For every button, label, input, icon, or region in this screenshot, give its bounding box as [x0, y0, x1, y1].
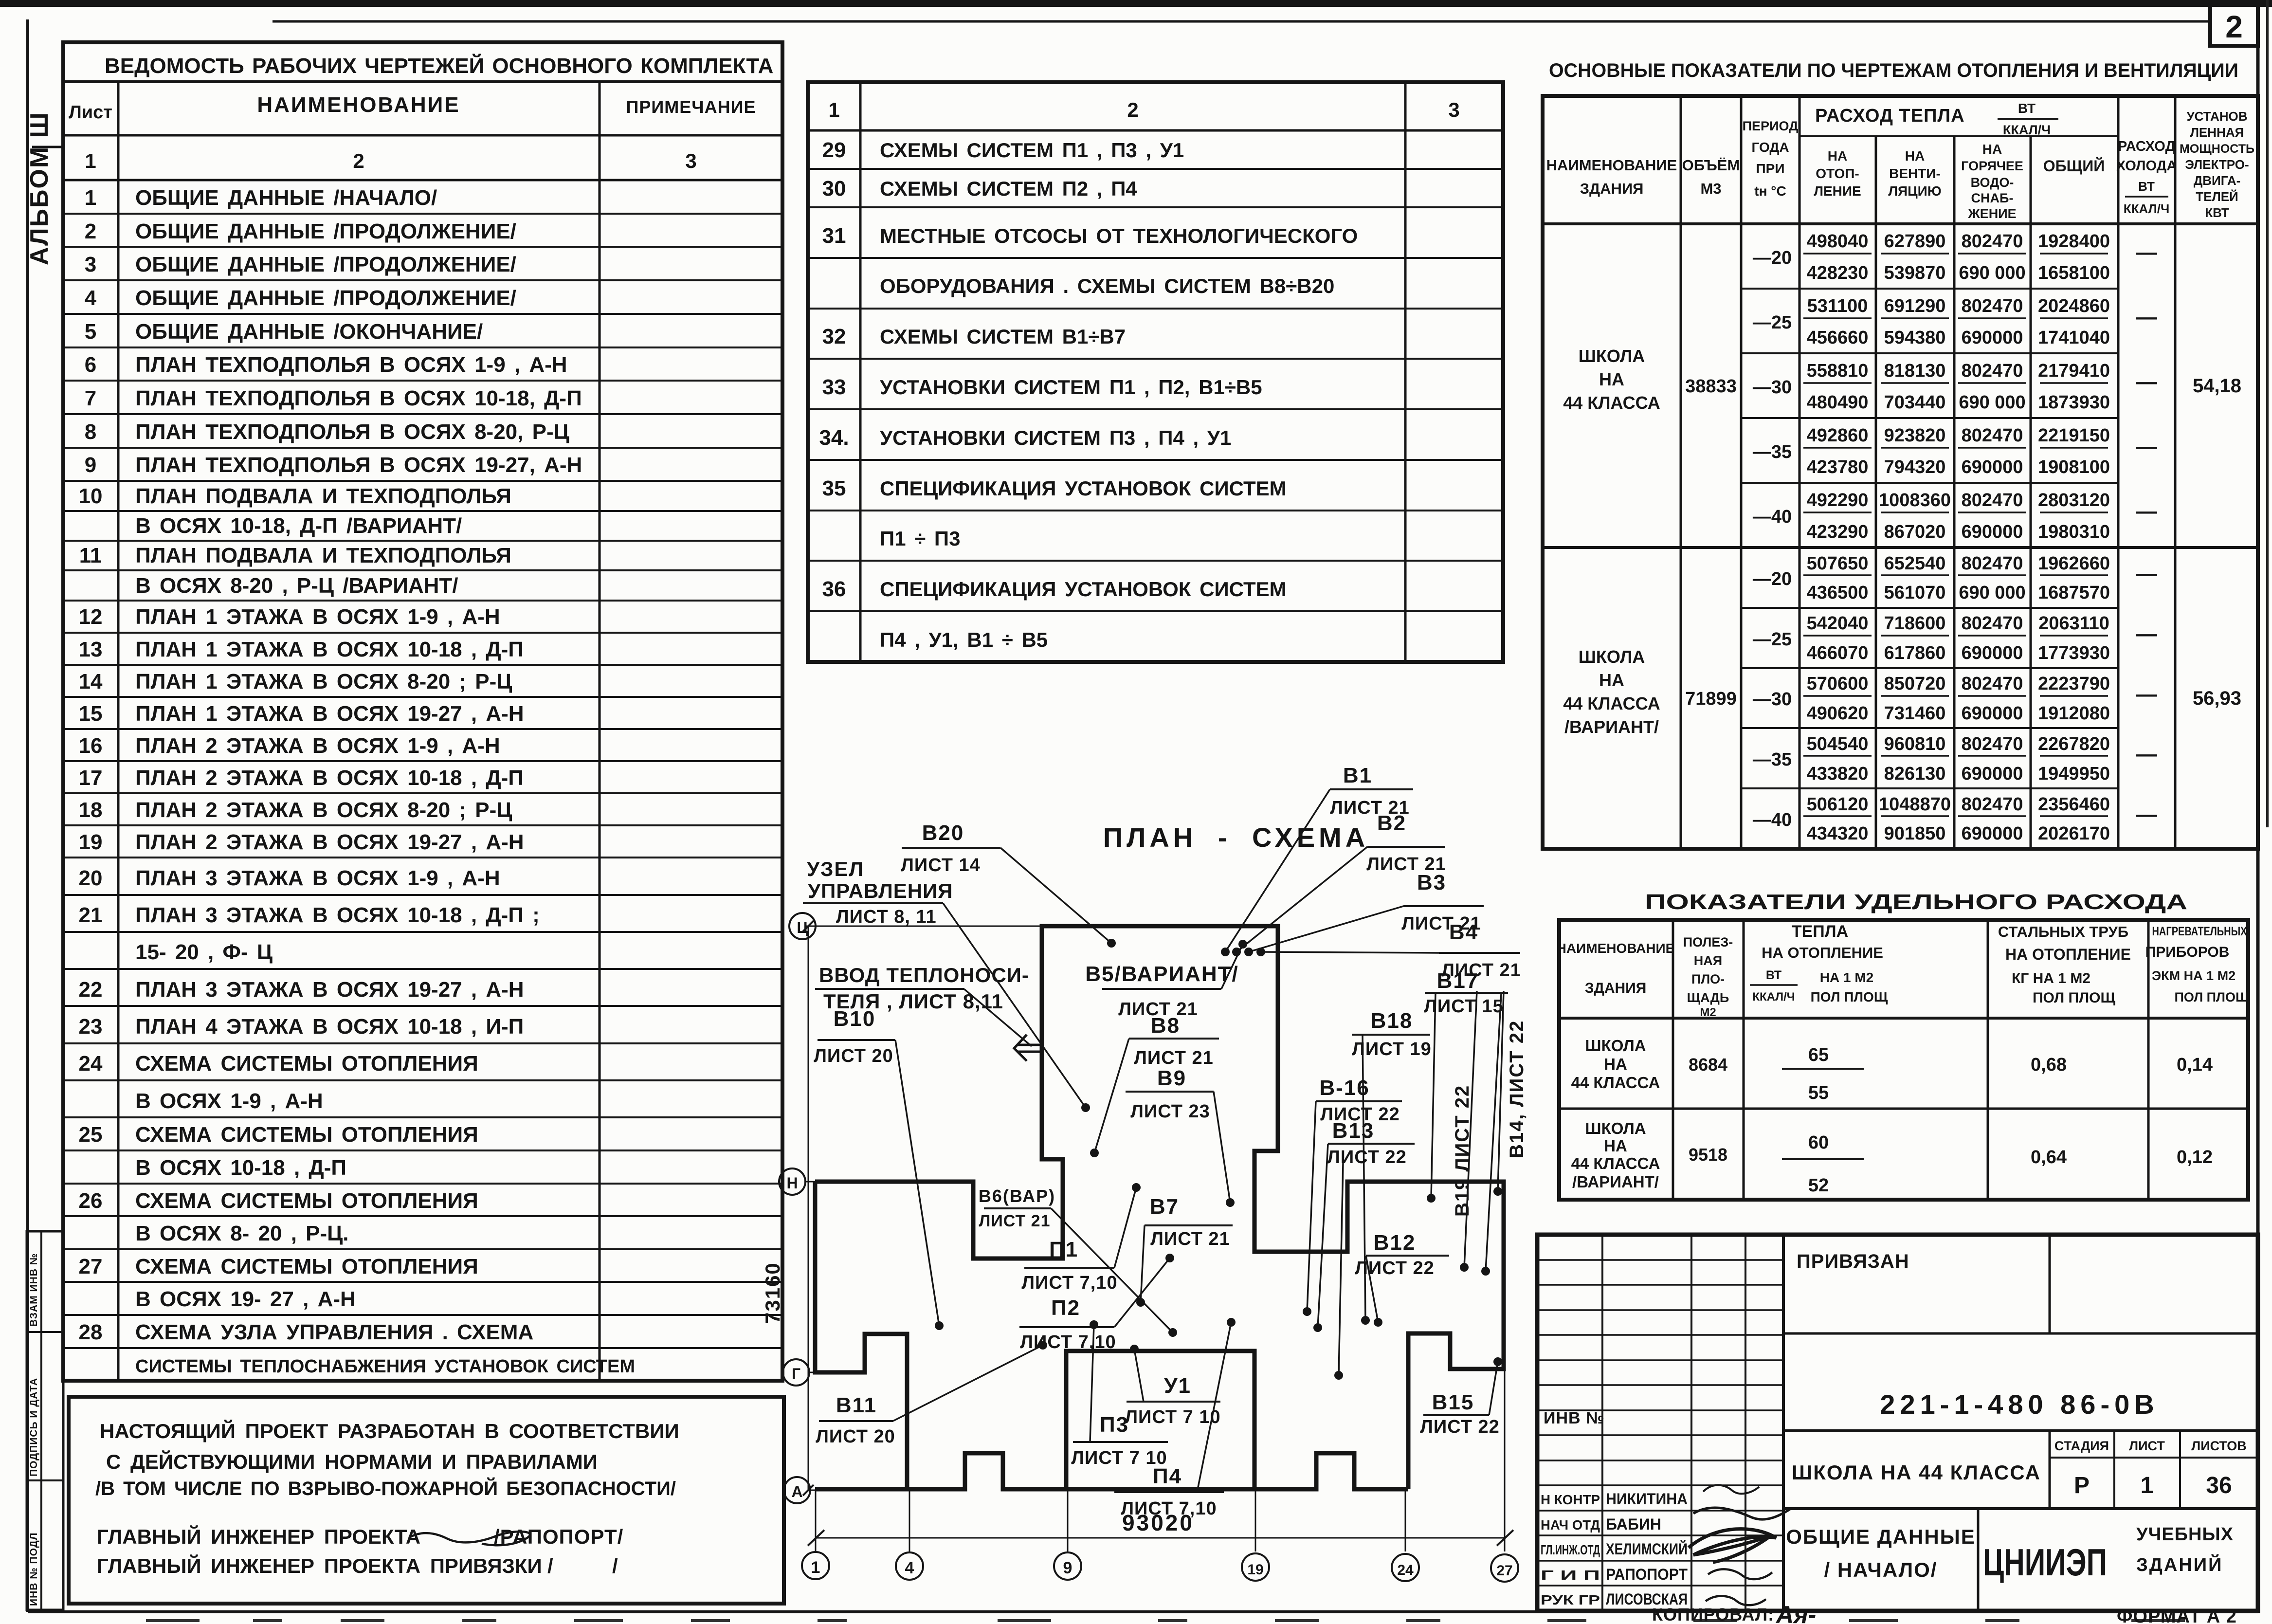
svg-text:СХЕМА СИСТЕМЫ ОТОПЛЕНИЯ: СХЕМА СИСТЕМЫ ОТОПЛЕНИЯ	[135, 1052, 478, 1076]
svg-text:490620: 490620	[1807, 703, 1869, 724]
svg-text:НАСТОЯЩИЙ ПРОЕКТ РАЗРАБОТАН: НАСТОЯЩИЙ ПРОЕКТ РАЗРАБОТАН В СООТВЕТСТВ…	[100, 1419, 679, 1442]
svg-text:ГЛ.ИНЖ.ОТД: ГЛ.ИНЖ.ОТД	[1541, 1542, 1600, 1557]
svg-text:Н КОНТР: Н КОНТР	[1541, 1492, 1600, 1507]
svg-text:24: 24	[1397, 1562, 1414, 1578]
svg-text:6: 6	[85, 353, 96, 377]
svg-text:ЛИСТ 19: ЛИСТ 19	[1352, 1039, 1432, 1059]
svg-text:15- 20 , Ф- Ц: 15- 20 , Ф- Ц	[135, 940, 273, 964]
svg-text:В17: В17	[1437, 969, 1479, 993]
svg-text:—40: —40	[1753, 810, 1792, 830]
svg-text:С ДЕЙСТВУЮЩИМИ НОРМАМИ И: С ДЕЙСТВУЮЩИМИ НОРМАМИ И ПРАВИЛАМИ	[106, 1450, 598, 1473]
svg-text:26: 26	[79, 1189, 103, 1213]
svg-text:ЛИСТ 22: ЛИСТ 22	[1420, 1417, 1500, 1437]
svg-text:802470: 802470	[1962, 490, 2023, 511]
svg-text:690000: 690000	[1962, 764, 2023, 784]
svg-text:5: 5	[85, 320, 96, 344]
svg-text:ФОРМАТ А 2: ФОРМАТ А 2	[2117, 1606, 2237, 1624]
svg-text:ПЛАН ПОДВАЛА И ТЕХПОДПОЛЬЯ: ПЛАН ПОДВАЛА И ТЕХПОДПОЛЬЯ	[135, 484, 511, 508]
svg-text:РАСХОД: РАСХОД	[2118, 139, 2176, 154]
svg-text:ОБЩИЕ ДАННЫЕ /ПРОДОЛЖЕНИЕ/: ОБЩИЕ ДАННЫЕ /ПРОДОЛЖЕНИЕ/	[135, 219, 516, 243]
svg-text:НАГРЕВАТЕЛЬНЫХ: НАГРЕВАТЕЛЬНЫХ	[2152, 925, 2247, 938]
svg-text:4: 4	[905, 1559, 914, 1577]
svg-text:35: 35	[822, 476, 846, 500]
svg-text:30: 30	[822, 177, 846, 201]
svg-text:—20: —20	[1753, 248, 1792, 268]
svg-text:ЛИСТ: ЛИСТ	[2129, 1439, 2165, 1453]
svg-text:25: 25	[79, 1123, 103, 1147]
svg-text:ОБЪЁМ: ОБЪЁМ	[1682, 157, 1740, 174]
svg-text:—: —	[2136, 622, 2157, 646]
svg-text:ПЛАН ПОДВАЛА И ТЕХПОДПОЛЬЯ: ПЛАН ПОДВАЛА И ТЕХПОДПОЛЬЯ	[135, 544, 511, 567]
svg-text:—35: —35	[1753, 442, 1792, 462]
svg-text:В5/ВАРИАНТ/: В5/ВАРИАНТ/	[1085, 962, 1238, 986]
svg-text:ПЛАН ТЕХПОДПОЛЬЯ В ОСЯХ 10-: ПЛАН ТЕХПОДПОЛЬЯ В ОСЯХ 10-18, Д-П	[135, 386, 582, 410]
svg-text:558810: 558810	[1807, 361, 1869, 381]
svg-text:ЛИСТ 20: ЛИСТ 20	[814, 1046, 893, 1066]
svg-text:ПОДПИСЬ И ДАТА: ПОДПИСЬ И ДАТА	[28, 1378, 39, 1477]
svg-text:617860: 617860	[1884, 643, 1946, 663]
svg-text:65: 65	[1808, 1045, 1829, 1065]
svg-text:433820: 433820	[1807, 764, 1869, 784]
svg-text:—25: —25	[1753, 312, 1792, 333]
svg-text:498040: 498040	[1807, 231, 1869, 252]
svg-text:703440: 703440	[1884, 392, 1946, 413]
svg-text:24: 24	[79, 1052, 103, 1076]
svg-text:2356460: 2356460	[2038, 794, 2110, 815]
svg-text:691290: 691290	[1884, 296, 1946, 316]
svg-text:НАИМЕНОВАНИЕ: НАИМЕНОВАНИЕ	[1557, 941, 1675, 956]
svg-text:НА ОТОПЛЕНИЕ: НА ОТОПЛЕНИЕ	[2005, 946, 2131, 963]
svg-text:492290: 492290	[1807, 490, 1869, 511]
svg-text:НАИМЕНОВАНИЕ: НАИМЕНОВАНИЕ	[257, 93, 460, 117]
svg-text:/: /	[612, 1554, 618, 1577]
svg-text:55: 55	[1808, 1083, 1829, 1103]
svg-text:—: —	[2136, 742, 2157, 766]
svg-text:ЛИСТ 21: ЛИСТ 21	[979, 1212, 1050, 1230]
svg-text:ПЛАН 1 ЭТАЖА В ОСЯХ 10-18 ,: ПЛАН 1 ЭТАЖА В ОСЯХ 10-18 , Д-П	[135, 638, 524, 661]
svg-text:ЗДАНИЯ: ЗДАНИЯ	[1580, 180, 1644, 197]
svg-text:466070: 466070	[1807, 643, 1869, 663]
svg-text:802470: 802470	[1962, 296, 2023, 316]
svg-text:2223790: 2223790	[2038, 674, 2110, 694]
svg-text:В4: В4	[1449, 920, 1478, 944]
svg-text:1873930: 1873930	[2038, 392, 2110, 413]
svg-text:456660: 456660	[1807, 328, 1869, 348]
svg-text:18: 18	[79, 798, 103, 822]
svg-text:СХЕМЫ СИСТЕМ П2 , П4: СХЕМЫ СИСТЕМ П2 , П4	[880, 177, 1137, 200]
svg-text:В-16: В-16	[1319, 1076, 1369, 1100]
svg-text:15: 15	[79, 702, 103, 726]
svg-text:ШКОЛА НА 44 КЛАССА: ШКОЛА НА 44 КЛАССА	[1792, 1461, 2041, 1484]
svg-text:ВОДО-: ВОДО-	[1971, 175, 2014, 190]
svg-text:НА: НА	[1604, 1055, 1627, 1073]
svg-text:594380: 594380	[1884, 328, 1946, 348]
svg-text:ОТОП-: ОТОП-	[1816, 166, 1859, 181]
svg-text:ЗДАНИЙ: ЗДАНИЙ	[2136, 1553, 2223, 1575]
svg-text:960810: 960810	[1884, 734, 1946, 754]
svg-text:802470: 802470	[1962, 734, 2023, 754]
svg-text:13: 13	[79, 638, 103, 661]
svg-text:802470: 802470	[1962, 794, 2023, 815]
svg-text:В ОСЯХ 8- 20 , Р-Ц.: В ОСЯХ 8- 20 , Р-Ц.	[135, 1222, 349, 1245]
svg-text:В1: В1	[1343, 764, 1372, 787]
svg-text:РАСХОД ТЕПЛА: РАСХОД ТЕПЛА	[1815, 106, 1965, 126]
svg-text:В18: В18	[1371, 1009, 1413, 1033]
svg-text:АЛЬБОМ Ш: АЛЬБОМ Ш	[25, 111, 54, 265]
svg-text:УСТАНОВ: УСТАНОВ	[2186, 109, 2247, 124]
svg-text:ОБЩИЕ ДАННЫЕ /ПРОДОЛЖЕНИЕ/: ОБЩИЕ ДАННЫЕ /ПРОДОЛЖЕНИЕ/	[135, 286, 516, 310]
svg-text:ЛИСТ 7 10: ЛИСТ 7 10	[1125, 1407, 1220, 1427]
svg-text:ОБЩИЕ ДАННЫЕ /ОКОНЧАНИЕ/: ОБЩИЕ ДАННЫЕ /ОКОНЧАНИЕ/	[135, 320, 483, 344]
svg-text:tн °C: tн °C	[1754, 183, 1786, 199]
svg-text:СХЕМА СИСТЕМЫ ОТОПЛЕНИЯ: СХЕМА СИСТЕМЫ ОТОПЛЕНИЯ	[135, 1255, 478, 1278]
svg-text:2: 2	[85, 219, 96, 243]
svg-text:В2: В2	[1377, 811, 1406, 835]
svg-text:НА: НА	[1604, 1137, 1627, 1155]
svg-text:690000: 690000	[1962, 643, 2023, 663]
svg-text:—30: —30	[1753, 689, 1792, 710]
svg-text:ИНВ №: ИНВ №	[1544, 1409, 1605, 1427]
svg-text:ЦНИИЭП: ЦНИИЭП	[1983, 1541, 2107, 1584]
svg-text:СХЕМА СИСТЕМЫ ОТОПЛЕНИЯ: СХЕМА СИСТЕМЫ ОТОПЛЕНИЯ	[135, 1189, 478, 1213]
svg-text:1949950: 1949950	[2038, 764, 2110, 784]
svg-text:/В ТОМ ЧИСЛЕ ПО ВЗРЫВО-ПОЖА: /В ТОМ ЧИСЛЕ ПО ВЗРЫВО-ПОЖАРНОЙ БЕЗОПАСН…	[95, 1477, 676, 1499]
svg-text:—25: —25	[1753, 629, 1792, 650]
svg-text:НА: НА	[1828, 148, 1847, 164]
svg-text:818130: 818130	[1884, 361, 1946, 381]
svg-text:561070: 561070	[1884, 583, 1946, 603]
svg-text:ЛИСТ 21: ЛИСТ 21	[1134, 1048, 1214, 1068]
svg-text:ОБЩИЙ: ОБЩИЙ	[2043, 157, 2105, 175]
svg-text:МЕСТНЫЕ ОТСОСЫ ОТ ТЕХНОЛОГИ: МЕСТНЫЕ ОТСОСЫ ОТ ТЕХНОЛОГИЧЕСКОГО	[880, 224, 1358, 247]
svg-text:19: 19	[79, 830, 103, 854]
svg-text:428230: 428230	[1807, 263, 1869, 283]
svg-text:В9: В9	[1157, 1066, 1186, 1090]
svg-text:ИНВ № ПОДЛ: ИНВ № ПОДЛ	[28, 1533, 39, 1606]
svg-text:ЛИСТ 8, 11: ЛИСТ 8, 11	[836, 907, 937, 927]
svg-text:506120: 506120	[1807, 794, 1869, 815]
svg-text:ТЕЛЕЙ: ТЕЛЕЙ	[2196, 189, 2238, 204]
svg-text:802470: 802470	[1962, 231, 2023, 252]
svg-text:ПОЛ ПЛОЩ: ПОЛ ПЛОЩ	[2033, 990, 2115, 1006]
svg-text:690000: 690000	[1962, 522, 2023, 542]
svg-text:Г И П: Г И П	[1541, 1568, 1600, 1583]
svg-text:423780: 423780	[1807, 457, 1869, 477]
svg-text:ТЕПЛА: ТЕПЛА	[1792, 922, 1848, 941]
svg-text:СТАЛЬНЫХ ТРУБ: СТАЛЬНЫХ ТРУБ	[1998, 923, 2128, 940]
svg-text:СНАБ-: СНАБ-	[1971, 191, 2014, 205]
svg-text:ПЛАН 1 ЭТАЖА В ОСЯХ 8-20 ;: ПЛАН 1 ЭТАЖА В ОСЯХ 8-20 ; Р-Ц	[135, 670, 512, 693]
svg-text:38833: 38833	[1685, 376, 1737, 397]
svg-text:0,12: 0,12	[2177, 1147, 2213, 1168]
svg-text:2: 2	[2225, 9, 2243, 44]
svg-text:826130: 826130	[1884, 764, 1946, 784]
svg-text:В10: В10	[834, 1007, 876, 1031]
svg-text:ОБОРУДОВАНИЯ . СХЕМЫ СИСТЕМ: ОБОРУДОВАНИЯ . СХЕМЫ СИСТЕМ В8÷В20	[880, 274, 1334, 297]
svg-text:1008360: 1008360	[1879, 490, 1951, 511]
svg-text:27: 27	[79, 1255, 103, 1278]
svg-text:П1: П1	[1049, 1238, 1078, 1261]
svg-text:480490: 480490	[1807, 392, 1869, 413]
svg-text:ПЛАН 4 ЭТАЖА В ОСЯХ 10-18 ,: ПЛАН 4 ЭТАЖА В ОСЯХ 10-18 , И-П	[135, 1015, 524, 1039]
svg-text:221-1-480 86-0В: 221-1-480 86-0В	[1880, 1389, 2159, 1420]
svg-text:У1: У1	[1164, 1374, 1191, 1398]
svg-text:690 000: 690 000	[1959, 263, 2025, 283]
svg-text:ХЕЛИМСКИЙ: ХЕЛИМСКИЙ	[1606, 1540, 1688, 1558]
svg-text:М2: М2	[1700, 1006, 1716, 1019]
svg-text:УПРАВЛЕНИЯ: УПРАВЛЕНИЯ	[808, 879, 953, 902]
svg-text:690 000: 690 000	[1959, 583, 2025, 603]
svg-text:3: 3	[85, 253, 96, 276]
svg-text:ПЛАН 2 ЭТАЖА В ОСЯХ 19-27 ,: ПЛАН 2 ЭТАЖА В ОСЯХ 19-27 , А-Н	[135, 830, 524, 854]
svg-text:44 КЛАССА: 44 КЛАССА	[1571, 1074, 1660, 1092]
svg-text:1928400: 1928400	[2038, 231, 2110, 252]
svg-text:УСТАНОВКИ СИСТЕМ П1 , П2,: УСТАНОВКИ СИСТЕМ П1 , П2, В1÷В5	[880, 376, 1262, 399]
svg-text:ВВОД ТЕПЛОНОСИ-: ВВОД ТЕПЛОНОСИ-	[819, 964, 1029, 986]
svg-text:44 КЛАССА: 44 КЛАССА	[1563, 693, 1660, 713]
svg-text:—20: —20	[1753, 569, 1792, 589]
svg-text:731460: 731460	[1884, 703, 1946, 724]
svg-text:ПОЛ ПЛОЩ: ПОЛ ПЛОЩ	[1811, 989, 1888, 1004]
svg-text:ГОРЯЧЕЕ: ГОРЯЧЕЕ	[1961, 159, 2023, 173]
svg-text:1: 1	[85, 186, 96, 210]
svg-text:3: 3	[685, 149, 696, 172]
svg-text:1: 1	[2141, 1473, 2154, 1498]
svg-text:690000: 690000	[1962, 703, 2023, 724]
svg-text:НАИМЕНОВАНИЕ: НАИМЕНОВАНИЕ	[1546, 157, 1677, 174]
svg-text:ВТ: ВТ	[2138, 179, 2155, 194]
svg-text:29: 29	[822, 138, 846, 162]
svg-text:531100: 531100	[1807, 296, 1868, 316]
svg-text:802470: 802470	[1962, 674, 2023, 694]
svg-text:—: —	[2136, 370, 2157, 394]
svg-text:ВЕДОМОСТЬ РАБОЧИХ ЧЕРТЕЖЕЙ: ВЕДОМОСТЬ РАБОЧИХ ЧЕРТЕЖЕЙ ОСНОВНОГО КОМ…	[105, 53, 773, 78]
svg-text:ЭКМ НА 1 М2: ЭКМ НА 1 М2	[2152, 968, 2236, 983]
svg-text:ЛИСТ 23: ЛИСТ 23	[1130, 1101, 1210, 1122]
svg-text:ПЛАН 1 ЭТАЖА В ОСЯХ 19-27 ,: ПЛАН 1 ЭТАЖА В ОСЯХ 19-27 , А-Н	[135, 702, 524, 726]
svg-text:НА 1 М2: НА 1 М2	[1820, 970, 1873, 985]
svg-text:ШКОЛА: ШКОЛА	[1579, 647, 1645, 667]
svg-text:ДВИГА-: ДВИГА-	[2194, 173, 2241, 188]
svg-text:690000: 690000	[1962, 328, 2023, 348]
svg-text:690000: 690000	[1962, 823, 2023, 844]
svg-text:ПЛАН ТЕХПОДПОЛЬЯ В ОСЯХ 1-9: ПЛАН ТЕХПОДПОЛЬЯ В ОСЯХ 1-9 , А-Н	[135, 353, 567, 377]
svg-text:33: 33	[822, 375, 846, 399]
svg-text:2267820: 2267820	[2038, 734, 2110, 754]
svg-text:ПРИВЯЗАН: ПРИВЯЗАН	[1797, 1251, 1909, 1272]
svg-text:В ОСЯХ 1-9 , А-Н: В ОСЯХ 1-9 , А-Н	[135, 1089, 323, 1113]
svg-text:КВТ: КВТ	[2205, 205, 2229, 220]
svg-text:1: 1	[811, 1558, 820, 1577]
svg-text:2026170: 2026170	[2038, 823, 2110, 844]
svg-text:ПЛАН ТЕХПОДПОЛЬЯ В ОСЯХ 8-2: ПЛАН ТЕХПОДПОЛЬЯ В ОСЯХ 8-20, Р-Ц	[135, 420, 569, 444]
svg-text:ККАЛ/Ч: ККАЛ/Ч	[1752, 990, 1795, 1004]
svg-text:44 КЛАССА: 44 КЛАССА	[1563, 393, 1660, 413]
svg-text:ЛИСТ 22: ЛИСТ 22	[1327, 1147, 1407, 1168]
svg-text:7: 7	[85, 386, 96, 410]
svg-text:В ОСЯХ 10-18, Д-П /ВАРИАНТ/: В ОСЯХ 10-18, Д-П /ВАРИАНТ/	[135, 514, 462, 538]
svg-text:ПЛАН 3 ЭТАЖА В ОСЯХ 10-18 ,: ПЛАН 3 ЭТАЖА В ОСЯХ 10-18 , Д-П ;	[135, 903, 540, 927]
svg-text:МОЩНОСТЬ: МОЩНОСТЬ	[2180, 142, 2254, 156]
svg-text:М3: М3	[1700, 180, 1721, 197]
svg-text:СХЕМЫ СИСТЕМ В1÷В7: СХЕМЫ СИСТЕМ В1÷В7	[880, 325, 1126, 348]
svg-text:17: 17	[79, 766, 103, 790]
svg-text:В6(ВАР): В6(ВАР)	[979, 1186, 1055, 1206]
svg-text:9: 9	[85, 453, 96, 477]
svg-text:ПОЛ ПЛОЩ: ПОЛ ПЛОЩ	[2174, 990, 2249, 1004]
svg-text:Р: Р	[2074, 1473, 2090, 1498]
svg-text:1912080: 1912080	[2038, 703, 2110, 724]
svg-text:20: 20	[79, 866, 103, 890]
svg-text:В ОСЯХ 10-18 , Д-П: В ОСЯХ 10-18 , Д-П	[135, 1156, 346, 1180]
svg-text:П3: П3	[1100, 1413, 1129, 1437]
svg-text:В15: В15	[1432, 1390, 1474, 1414]
svg-text:31: 31	[822, 224, 846, 248]
svg-text:2024860: 2024860	[2038, 296, 2110, 316]
svg-text:71899: 71899	[1685, 689, 1737, 709]
svg-text:ЛЯЦИЮ: ЛЯЦИЮ	[1888, 183, 1941, 199]
svg-text:ШКОЛА: ШКОЛА	[1585, 1037, 1646, 1055]
svg-text:КГ НА 1 М2: КГ НА 1 М2	[2012, 970, 2090, 986]
svg-text:ЛЕННАЯ: ЛЕННАЯ	[2190, 125, 2244, 140]
svg-text:652540: 652540	[1884, 553, 1946, 574]
svg-text:СХЕМЫ СИСТЕМ П1 , П3 , У1: СХЕМЫ СИСТЕМ П1 , П3 , У1	[880, 139, 1184, 162]
svg-text:ОБЩИЕ ДАННЫЕ /НАЧАЛО/: ОБЩИЕ ДАННЫЕ /НАЧАЛО/	[135, 186, 437, 210]
svg-text:ЛИСТ 20: ЛИСТ 20	[816, 1426, 895, 1447]
svg-text:60: 60	[1808, 1132, 1829, 1153]
svg-text:ГОДА: ГОДА	[1751, 140, 1789, 155]
svg-text:НА: НА	[1982, 142, 2002, 157]
svg-text:0,68: 0,68	[2031, 1055, 2067, 1075]
svg-text:СХЕМА СИСТЕМЫ ОТОПЛЕНИЯ: СХЕМА СИСТЕМЫ ОТОПЛЕНИЯ	[135, 1123, 478, 1147]
svg-text:504540: 504540	[1807, 734, 1869, 754]
svg-text:БАБИН: БАБИН	[1606, 1515, 1661, 1533]
svg-text:923820: 923820	[1884, 425, 1946, 446]
svg-text:СПЕЦИФИКАЦИЯ УСТАНОВОК СИС: СПЕЦИФИКАЦИЯ УСТАНОВОК СИСТЕМ	[880, 578, 1287, 601]
svg-text:НИКИТИНА: НИКИТИНА	[1606, 1490, 1688, 1508]
svg-text:423290: 423290	[1807, 522, 1869, 542]
svg-text:Н: Н	[786, 1174, 798, 1192]
svg-text:1741040: 1741040	[2038, 328, 2110, 348]
svg-text:ГЛАВНЫЙ ИНЖЕНЕР ПРОЕКТА: ГЛАВНЫЙ ИНЖЕНЕР ПРОЕКТА	[97, 1525, 420, 1548]
svg-text:ПЛАН 1 ЭТАЖА В ОСЯХ 1-9 , А: ПЛАН 1 ЭТАЖА В ОСЯХ 1-9 , А-Н	[135, 605, 500, 629]
svg-text:В14, ЛИСТ 22: В14, ЛИСТ 22	[1506, 1020, 1527, 1158]
svg-text:9518: 9518	[1689, 1145, 1727, 1165]
svg-text:ПРИ: ПРИ	[1756, 161, 1785, 176]
svg-text:ОБЩИЕ ДАННЫЕ: ОБЩИЕ ДАННЫЕ	[1786, 1525, 1976, 1548]
svg-text:570600: 570600	[1807, 674, 1869, 694]
svg-text:ПЛАН ТЕХПОДПОЛЬЯ В ОСЯХ 19-: ПЛАН ТЕХПОДПОЛЬЯ В ОСЯХ 19-27, А-Н	[135, 453, 582, 477]
svg-text:850720: 850720	[1884, 674, 1946, 694]
svg-text:—: —	[2136, 499, 2157, 523]
svg-text:2: 2	[353, 149, 364, 172]
svg-text:В12: В12	[1374, 1231, 1416, 1255]
svg-text:ПЕРИОД: ПЕРИОД	[1743, 119, 1799, 133]
svg-text:ЛИСТ 7,10: ЛИСТ 7,10	[1021, 1273, 1117, 1293]
svg-text:34.: 34.	[819, 426, 849, 450]
svg-text:2: 2	[1127, 98, 1138, 121]
svg-text:В ОСЯХ 8-20 , Р-Ц /ВАРИАНТ/: В ОСЯХ 8-20 , Р-Ц /ВАРИАНТ/	[135, 574, 458, 598]
svg-text:ПРИБОРОВ: ПРИБОРОВ	[2145, 944, 2230, 960]
svg-text:28: 28	[79, 1320, 103, 1344]
svg-text:П1 ÷ П3: П1 ÷ П3	[880, 527, 960, 550]
svg-text:802470: 802470	[1962, 613, 2023, 634]
svg-text:22: 22	[79, 978, 103, 1002]
svg-text:690000: 690000	[1962, 457, 2023, 477]
svg-text:ЖЕНИЕ: ЖЕНИЕ	[1967, 206, 2016, 221]
svg-text:14: 14	[79, 670, 103, 693]
svg-text:44 КЛАССА: 44 КЛАССА	[1571, 1154, 1660, 1172]
svg-text:1980310: 1980310	[2038, 522, 2110, 542]
svg-text:1048870: 1048870	[1879, 794, 1951, 815]
svg-text:27: 27	[1496, 1563, 1512, 1579]
svg-text:2803120: 2803120	[2038, 490, 2110, 511]
svg-text:НА: НА	[1599, 670, 1624, 690]
svg-text:ОСНОВНЫЕ ПОКАЗАТЕЛИ ПО ЧЕРТ: ОСНОВНЫЕ ПОКАЗАТЕЛИ ПО ЧЕРТЕЖАМ ОТОПЛЕНИ…	[1549, 60, 2238, 81]
svg-text:3: 3	[1448, 98, 1459, 121]
svg-text:—: —	[2136, 305, 2157, 329]
svg-text:ПЛАН 2 ЭТАЖА В ОСЯХ 1-9 , А: ПЛАН 2 ЭТАЖА В ОСЯХ 1-9 , А-Н	[135, 734, 500, 758]
svg-text:ЗДАНИЯ: ЗДАНИЯ	[1585, 980, 1647, 996]
svg-text:542040: 542040	[1807, 613, 1869, 634]
svg-text:УЧЕБНЫХ: УЧЕБНЫХ	[2136, 1524, 2234, 1545]
svg-text:В3: В3	[1417, 871, 1446, 894]
svg-text:ЛИСТ 21: ЛИСТ 21	[1150, 1229, 1230, 1249]
svg-text:539870: 539870	[1884, 263, 1946, 283]
svg-text:492860: 492860	[1807, 425, 1869, 446]
svg-text:436500: 436500	[1807, 583, 1869, 603]
svg-text:—: —	[2136, 562, 2157, 585]
svg-text:ШКОЛА: ШКОЛА	[1579, 346, 1645, 366]
svg-text:ЭЛЕКТРО-: ЭЛЕКТРО-	[2185, 157, 2249, 172]
svg-text:В13: В13	[1332, 1119, 1375, 1143]
svg-text:36: 36	[2206, 1473, 2232, 1498]
svg-text:СПЕЦИФИКАЦИЯ УСТАНОВОК СИСТЕ: СПЕЦИФИКАЦИЯ УСТАНОВОК СИСТЕМ	[880, 477, 1287, 500]
svg-text:32: 32	[822, 325, 846, 348]
svg-text:ПЛАН 3 ЭТАЖА В ОСЯХ 19-27 ,: ПЛАН 3 ЭТАЖА В ОСЯХ 19-27 , А-Н	[135, 978, 524, 1002]
svg-text:А: А	[791, 1483, 802, 1500]
svg-text:СХЕМА УЗЛА УПРАВЛЕНИЯ . СХЕМ: СХЕМА УЗЛА УПРАВЛЕНИЯ . СХЕМА	[135, 1320, 533, 1344]
svg-text:НА: НА	[1905, 148, 1925, 164]
svg-text:В20: В20	[922, 821, 964, 845]
svg-text:—30: —30	[1753, 377, 1792, 398]
svg-text:802470: 802470	[1962, 361, 2023, 381]
svg-text:ШКОЛА: ШКОЛА	[1585, 1119, 1646, 1137]
svg-text:ККАЛ/Ч: ККАЛ/Ч	[2003, 123, 2051, 137]
svg-text:1773930: 1773930	[2038, 643, 2110, 663]
svg-text:2179410: 2179410	[2038, 361, 2110, 381]
svg-text:718600: 718600	[1884, 613, 1946, 634]
svg-text:РАПОПОРТ: РАПОПОРТ	[1606, 1566, 1688, 1583]
svg-text:/: /	[547, 1554, 553, 1577]
svg-text:507650: 507650	[1807, 553, 1869, 574]
svg-text:СТАДИЯ: СТАДИЯ	[2054, 1439, 2109, 1453]
svg-text:ПЛО-: ПЛО-	[1691, 972, 1725, 986]
svg-text:54,18: 54,18	[2193, 375, 2241, 397]
svg-text:НА ОТОПЛЕНИЕ: НА ОТОПЛЕНИЕ	[1762, 944, 1883, 961]
svg-text:21: 21	[79, 903, 103, 927]
svg-text:0,64: 0,64	[2031, 1147, 2067, 1168]
svg-text:ВЕНТИ-: ВЕНТИ-	[1889, 166, 1941, 181]
svg-text:2063110: 2063110	[2038, 613, 2109, 634]
svg-text:/РАПОПОРТ/: /РАПОПОРТ/	[494, 1525, 623, 1548]
svg-text:901850: 901850	[1884, 823, 1946, 844]
svg-text:867020: 867020	[1884, 522, 1946, 542]
svg-text:11: 11	[79, 544, 102, 567]
svg-text:ЛИСТ 14: ЛИСТ 14	[901, 855, 981, 876]
svg-text:—40: —40	[1753, 507, 1792, 527]
svg-text:/ВАРИАНТ/: /ВАРИАНТ/	[1564, 717, 1659, 737]
